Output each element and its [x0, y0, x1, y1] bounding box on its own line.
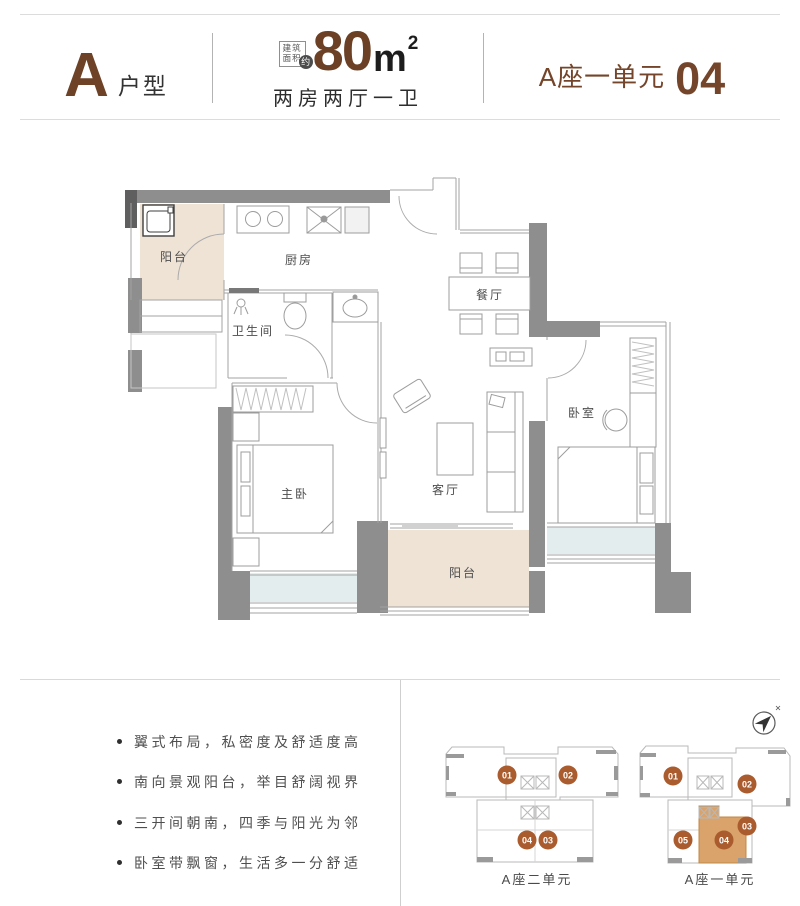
feature-item: 南向景观阳台，举目舒阔视界 [117, 775, 407, 790]
feature-item: 卧室带飘窗，生活多一分舒适 [117, 856, 407, 871]
area-badge: 建筑 面积 约 [279, 41, 306, 67]
badge-a2-02: 02 [563, 771, 573, 781]
room-label-balcony-north: 阳台 [160, 249, 188, 264]
room-label-bathroom: 卫生间 [232, 324, 274, 338]
keyplan-label-right: A座一单元 [685, 872, 756, 887]
key-plan: 01 02 04 03 01 02 03 05 04 A座二单元 A座一单元 [420, 690, 800, 900]
compass-north-icon [753, 706, 780, 734]
layout-description: 两房两厅一卫 [273, 82, 423, 111]
building-a1 [640, 746, 790, 863]
badge-a2-03: 03 [543, 836, 553, 846]
badge-a2-01: 01 [502, 771, 512, 781]
badge-a1-05: 05 [678, 836, 688, 846]
area-value: 80 [313, 29, 371, 74]
unit-number: 04 [675, 61, 725, 97]
unit-type-section: A 户型 [20, 15, 212, 119]
area-row: 建筑 面积 约 80 m2 [279, 29, 418, 74]
area-badge-circle: 约 [299, 55, 313, 69]
feature-item: 三开间朝南，四季与阳光为邻 [117, 816, 407, 831]
badge-a1-02: 02 [742, 780, 752, 790]
room-label-balcony-south: 阳台 [449, 565, 477, 580]
room-label-master-bedroom: 主卧 [281, 487, 309, 501]
badge-a2-04: 04 [522, 836, 532, 846]
header: A 户型 建筑 面积 约 80 m2 两房两厅一卫 A座一单元 04 [20, 14, 780, 120]
badge-a1-01: 01 [668, 772, 678, 782]
room-label-bedroom: 卧室 [568, 405, 596, 420]
feature-item: 翼式布局，私密度及舒适度高 [117, 735, 407, 750]
area-superscript: 2 [408, 33, 419, 54]
block-unit-section: A座一单元 04 [484, 15, 780, 119]
area-section: 建筑 面积 约 80 m2 两房两厅一卫 [213, 15, 483, 119]
bedroom-baywindow-area [547, 527, 655, 554]
area-unit: m2 [373, 44, 417, 74]
unit-type-word: 户型 [118, 67, 168, 101]
keyplan-label-left: A座二单元 [502, 872, 573, 887]
master-baywindow-area [250, 573, 357, 602]
room-label-living: 客厅 [432, 482, 460, 497]
badge-a1-03: 03 [742, 822, 752, 832]
floorplan-page: A 户型 建筑 面积 约 80 m2 两房两厅一卫 A座一单元 04 [0, 0, 800, 906]
unit-type-letter: A [64, 50, 109, 103]
feature-list: 翼式布局，私密度及舒适度高 南向景观阳台，举目舒阔视界 三开间朝南，四季与阳光为… [117, 735, 407, 897]
area-badge-line1: 建筑 [283, 43, 302, 53]
floor-plan: 阳台 厨房 卫生间 餐厅 主卧 客厅 卧室 阳台 [100, 170, 720, 630]
block-label: A座一单元 [539, 57, 665, 94]
room-label-kitchen: 厨房 [285, 252, 313, 267]
room-label-dining: 餐厅 [476, 287, 504, 302]
badge-a1-04: 04 [719, 836, 729, 846]
